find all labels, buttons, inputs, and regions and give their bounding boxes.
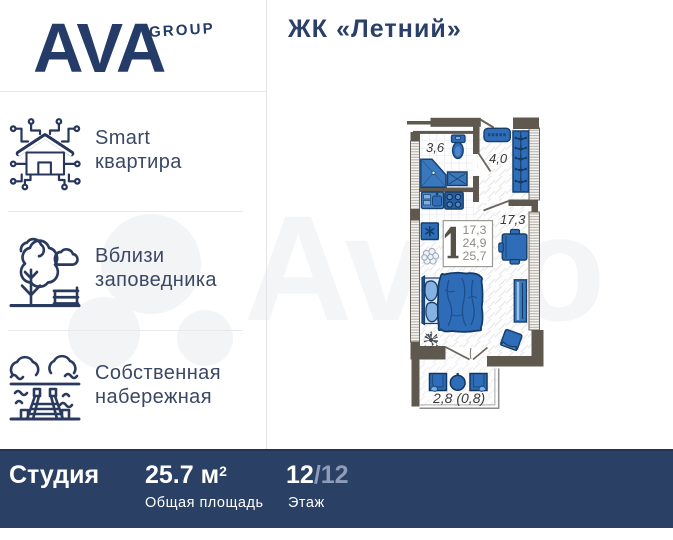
- svg-text:17,3: 17,3: [463, 223, 487, 237]
- svg-text:4,0: 4,0: [489, 151, 508, 166]
- svg-text:25,7: 25,7: [463, 249, 487, 263]
- svg-text:3,6: 3,6: [426, 140, 445, 155]
- svg-text:17,3: 17,3: [500, 212, 526, 227]
- svg-text:2,8 (0,8): 2,8 (0,8): [432, 390, 485, 406]
